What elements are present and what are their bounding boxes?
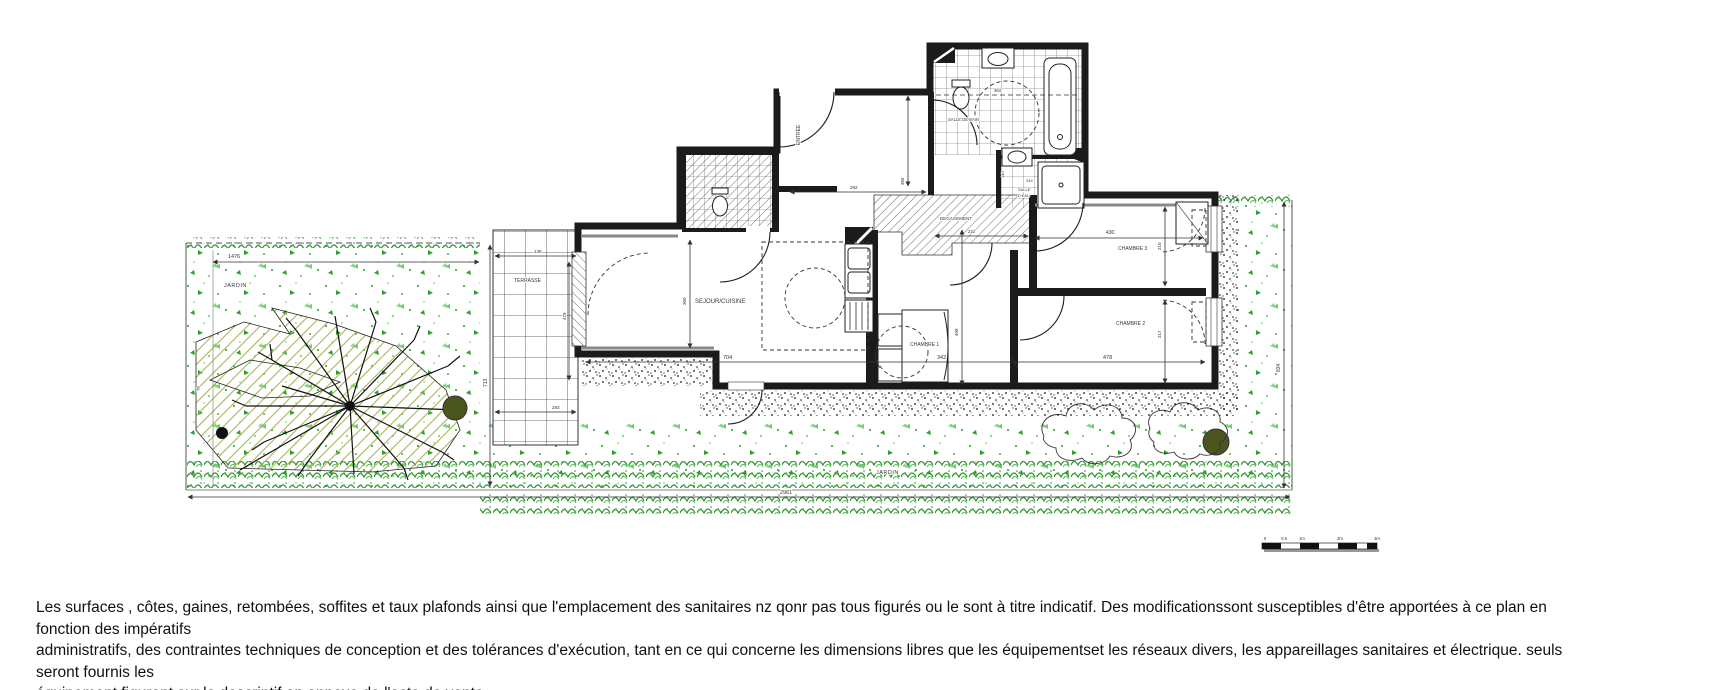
dim-entree-h: 365 <box>900 177 905 185</box>
scale-0: 0 <box>1264 536 1267 541</box>
dim-jardin-edge: 79 <box>196 386 201 391</box>
dim-chambre1-h: 408 <box>954 328 959 336</box>
label-chambre2: CHAMBRE 2 <box>1116 321 1145 327</box>
dim-sde-h: 140 <box>1000 171 1005 178</box>
dim-jardin-bottom-w: 2961 <box>780 490 792 496</box>
dim-terrasse-b: 283 <box>552 405 560 410</box>
dim-chambre3-w: 430 <box>1106 230 1115 236</box>
dim-chambre2-h: 217 <box>1157 330 1162 338</box>
bed-pillow-2 <box>878 349 902 381</box>
scale-05: 0,5 <box>1281 536 1287 541</box>
label-degagement: DEGAGEMENT <box>940 216 972 221</box>
scale-1m: 1m <box>1299 536 1305 541</box>
label-sejour: SEJOUR/CUISINE <box>695 299 745 305</box>
floor-plan-canvas: 1476 JARDIN 713 79 2961 834 JARDIN 138 T… <box>0 0 1709 690</box>
dim-sejour-h: 360 <box>682 297 687 305</box>
dim-jardin-left-w: 1476 <box>228 254 240 260</box>
label-salle-de-bain: SALLE DE BAIN <box>948 117 979 122</box>
scale-2m: 2m <box>1337 536 1343 541</box>
dim-sdb-w: 364 <box>994 88 1002 93</box>
bathroom-toilet <box>952 80 970 87</box>
hedge-bottom-lower <box>480 492 1292 514</box>
dim-entree-w: 282 <box>850 185 858 190</box>
label-salle-deau-1: SALLE <box>1018 187 1031 192</box>
dim-terrasse-w: 138 <box>534 249 542 254</box>
disclaimer-line-3: équipement figurant sur le descriptif en… <box>36 683 1596 690</box>
bed-pillow-1 <box>878 314 902 346</box>
dim-sejour-w: 704 <box>723 355 732 361</box>
scale-3m: 3m <box>1374 536 1380 541</box>
tree-canopy-left <box>443 396 467 420</box>
floor-plan-page: 1476 JARDIN 713 79 2961 834 JARDIN 138 T… <box>0 0 1709 690</box>
label-entree: ENTRÉE <box>795 124 802 145</box>
label-jardin-bottom: JARDIN <box>876 470 899 476</box>
label-chambre1: CHAMBRE 1 <box>910 342 939 348</box>
terrace <box>493 230 578 445</box>
disclaimer-line-2: administratifs, des contraintes techniqu… <box>36 640 1596 683</box>
dim-jardin-left-h: 713 <box>483 378 489 387</box>
dim-degagement-w: 222 <box>968 229 976 234</box>
dim-chambre3-h: 210 <box>1157 242 1162 250</box>
dim-chambre2-w: 478 <box>1103 355 1112 361</box>
label-jardin-left: JARDIN <box>224 283 247 289</box>
stipple-below-wing <box>700 390 1238 416</box>
dim-jardin-right-h: 834 <box>1276 363 1282 372</box>
disclaimer-line-1: Les surfaces , côtes, gaines, retombées,… <box>36 597 1596 640</box>
label-chambre3: CHAMBRE 3 <box>1118 246 1147 252</box>
legal-disclaimer: Les surfaces , côtes, gaines, retombées,… <box>36 597 1596 690</box>
tree-canopy-right <box>1203 429 1229 455</box>
scale-bar: 0 0,5 1m 2m 3m <box>1262 536 1380 552</box>
kitchen-counter <box>845 300 873 332</box>
wc-toilet <box>712 188 728 194</box>
label-salle-deau-2: D'EAU <box>1018 193 1030 198</box>
tree-trunk <box>345 401 355 411</box>
dim-sde-w: 244 <box>1026 178 1033 183</box>
tree-trunk-small <box>216 427 228 439</box>
label-terrasse: TERRASSE <box>514 278 542 284</box>
dim-chambre1-w: 342 <box>937 355 946 361</box>
dim-terrasse-h: 479 <box>562 312 567 320</box>
wc-room <box>684 153 774 230</box>
